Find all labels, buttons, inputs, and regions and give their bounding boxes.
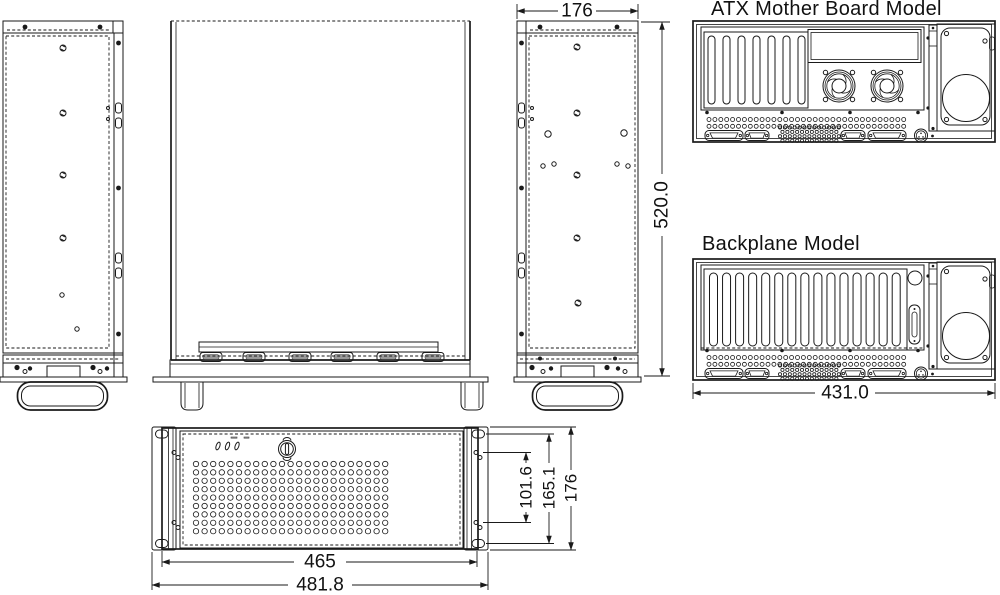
vent-hole [383,512,388,517]
expansion-slot [708,36,715,104]
vent-hole [228,512,233,517]
vent-hole [236,529,241,534]
vent-hole [193,461,198,466]
vent-hole [365,478,370,483]
backplane-slot [762,273,770,346]
vent-hole [331,470,336,475]
vent-hole [297,470,302,475]
cooling-fan [871,70,903,102]
vent-hole [322,529,327,534]
vent-hole [288,470,293,475]
vent-hole [383,470,388,475]
expansion-slot [768,36,775,104]
vent-hole [297,478,302,483]
vent-hole [314,470,319,475]
vent-hole [331,512,336,517]
vent-hole [211,529,216,534]
vent-hole [305,520,310,525]
vent-hole [211,487,216,492]
vent-hole [219,529,224,534]
dimension-overall-height: 520.0 [641,22,673,376]
vent-hole [236,495,241,500]
vent-hole [340,461,345,466]
vent-hole [211,461,216,466]
expansion-slot [798,36,805,104]
vent-hole [365,520,370,525]
vent-hole [348,529,353,534]
vent-hole [383,529,388,534]
vent-hole [348,461,353,466]
vent-hole [348,478,353,483]
rear-hole [908,271,922,285]
vent-hole [383,503,388,508]
vent-hole [236,470,241,475]
vent-hole [262,495,267,500]
vent-hole [211,470,216,475]
stand-handle [533,382,623,410]
backplane-slot [853,273,861,346]
vent-hole [236,461,241,466]
vent-hole [262,529,267,534]
vent-hole [357,520,362,525]
vent-hole [279,512,284,517]
vent-hole [348,520,353,525]
vent-hole [340,470,345,475]
vent-hole [262,512,267,517]
vent-hole [357,512,362,517]
dim-label-top-width: 176 [561,1,593,22]
backplane-slot [814,273,822,346]
vent-hole [374,495,379,500]
vent-hole [340,503,345,508]
dim-label-front-height: 176 [562,474,581,502]
vent-hole [271,487,276,492]
vent-hole [228,461,233,466]
vent-hole [254,470,259,475]
vent-hole [236,478,241,483]
vent-hole [254,478,259,483]
dimension-front-rail-pitch: 101.6 [483,453,536,523]
vent-hole [236,520,241,525]
vent-hole [383,461,388,466]
backplane-slot [723,273,731,346]
backplane-slot [840,273,848,346]
vent-hole [365,512,370,517]
vent-hole [279,470,284,475]
power-supply [929,262,995,369]
vent-hole [357,487,362,492]
vent-hole [193,495,198,500]
vent-hole [348,470,353,475]
plan-view-center [153,21,488,410]
vent-hole [348,503,353,508]
vent-hole [211,478,216,483]
expansion-slot [723,36,730,104]
stand-leg [181,382,203,410]
vent-hole [279,487,284,492]
vent-hole [297,529,302,534]
dimension-top-width: 176 [517,1,638,22]
vent-hole [262,470,267,475]
vent-hole [245,470,250,475]
front-led-indicators [215,437,249,450]
front-vent-grid [193,461,388,534]
drawing-canvas: 176 520.0 ATX Mother Board Model Backpla… [0,0,1000,595]
vent-hole [279,503,284,508]
vent-hole [262,487,267,492]
vent-hole [314,461,319,466]
vent-hole [262,478,267,483]
vent-hole [374,478,379,483]
vent-hole [228,487,233,492]
vent-hole [271,495,276,500]
backplane-slot [775,273,783,346]
vent-hole [271,503,276,508]
vertical-connector-bracket [909,305,920,344]
vent-hole [193,503,198,508]
vent-hole [245,495,250,500]
vent-hole [228,470,233,475]
side-view-right [514,21,641,410]
backplane-slot [866,273,874,346]
vent-hole [331,487,336,492]
dim-label-overall-width: 481.8 [296,575,344,595]
rear-view-atx: ATX Mother Board Model [693,0,995,142]
vent-hole [219,487,224,492]
vent-hole [322,495,327,500]
vent-hole [314,503,319,508]
backplane-slot [892,273,900,346]
vent-hole [340,487,345,492]
vent-hole [219,495,224,500]
rear-view-backplane: Backplane Model [693,233,995,380]
vent-hole [279,529,284,534]
vent-hole [365,470,370,475]
vent-hole [271,478,276,483]
vent-hole [322,461,327,466]
vent-hole [288,529,293,534]
stand-handle [18,382,108,410]
vent-hole [193,529,198,534]
backplane-slot [788,273,796,346]
vent-hole [297,461,302,466]
vent-hole [305,529,310,534]
vent-hole [202,478,207,483]
vent-hole [348,495,353,500]
vent-hole [228,478,233,483]
rear-io-strip [705,349,934,381]
atx-model-title: ATX Mother Board Model [711,0,942,20]
dim-label-overall-height: 520.0 [652,181,673,229]
vent-hole [374,461,379,466]
vent-hole [202,503,207,508]
vent-hole [331,529,336,534]
vent-hole [357,470,362,475]
vent-hole [202,520,207,525]
vent-hole [271,470,276,475]
expansion-slot [783,36,790,104]
vent-hole [383,487,388,492]
vent-hole [288,487,293,492]
vent-hole [271,461,276,466]
vent-hole [340,520,345,525]
vent-hole [254,520,259,525]
vent-hole [254,503,259,508]
vent-hole [271,529,276,534]
vent-hole [254,529,259,534]
vent-hole [219,470,224,475]
side-view-left [0,21,127,410]
vent-hole [322,503,327,508]
vent-hole [314,520,319,525]
vent-hole [365,529,370,534]
expansion-slot [753,36,760,104]
vent-hole [322,470,327,475]
cooling-fan [823,70,855,102]
vent-hole [202,512,207,517]
vent-hole [288,503,293,508]
rear-io-strip [705,111,934,143]
vent-hole [193,478,198,483]
vent-hole [365,495,370,500]
vent-hole [279,495,284,500]
vent-hole [288,512,293,517]
vent-hole [262,503,267,508]
vent-hole [365,503,370,508]
front-face-plate [180,431,463,548]
vent-hole [357,495,362,500]
front-view [152,427,488,550]
vent-hole [297,520,302,525]
vent-hole [271,520,276,525]
rack-ear-right [464,427,488,550]
vent-hole [348,512,353,517]
vent-hole [236,512,241,517]
vent-hole [193,512,198,517]
vent-hole [374,520,379,525]
vent-hole [314,495,319,500]
vent-hole [288,520,293,525]
vent-hole [322,478,327,483]
vent-hole [245,529,250,534]
vent-hole [357,529,362,534]
vent-hole [245,478,250,483]
front-keylock [279,438,296,461]
vent-hole [245,503,250,508]
vent-hole [254,487,259,492]
vent-hole [271,512,276,517]
vent-hole [340,529,345,534]
stand-leg [461,382,483,410]
dimension-front-body-width: 465 [162,551,477,573]
vent-hole [219,512,224,517]
vent-hole [314,529,319,534]
backplane-slot [736,273,744,346]
expansion-slot [738,36,745,104]
backplane-slot [879,273,887,346]
vent-hole [374,487,379,492]
vent-hole [305,512,310,517]
vent-hole [254,461,259,466]
vent-hole [202,470,207,475]
power-supply [929,24,995,131]
vent-hole [245,461,250,466]
vent-hole [202,529,207,534]
vent-hole [365,461,370,466]
vent-hole [254,512,259,517]
rack-ear-left [152,427,176,550]
vent-hole [228,503,233,508]
vent-hole [374,470,379,475]
vent-hole [236,503,241,508]
vent-hole [219,503,224,508]
vent-hole [245,487,250,492]
io-shield-opening [808,30,921,63]
vent-hole [202,461,207,466]
vent-hole [383,495,388,500]
vent-hole [245,512,250,517]
vent-hole [340,495,345,500]
backplane-slot [801,273,809,346]
vent-hole [322,512,327,517]
vent-hole [297,487,302,492]
vent-hole [193,470,198,475]
vent-hole [193,487,198,492]
vent-hole [383,478,388,483]
vent-hole [357,461,362,466]
vent-hole [305,487,310,492]
vent-hole [305,495,310,500]
vent-hole [279,478,284,483]
vent-hole [288,478,293,483]
backplane-slot [710,273,718,346]
technical-drawing-4u-chassis: 176 520.0 ATX Mother Board Model Backpla… [0,0,1000,595]
backplane-slot [749,273,757,346]
vent-hole [383,520,388,525]
vent-hole [305,478,310,483]
vent-hole [202,495,207,500]
vent-hole [228,520,233,525]
backplane-model-title: Backplane Model [702,233,860,255]
vent-hole [279,461,284,466]
vent-hole [314,512,319,517]
vent-hole [305,470,310,475]
vent-hole [254,495,259,500]
vent-hole [297,495,302,500]
vent-hole [219,461,224,466]
vent-hole [211,495,216,500]
vent-hole [288,461,293,466]
vent-hole [305,461,310,466]
vent-hole [305,503,310,508]
vent-hole [219,520,224,525]
vent-hole [374,529,379,534]
vent-hole [331,495,336,500]
vent-hole [340,512,345,517]
dimension-rear-width: 431.0 [693,383,995,404]
vent-hole [262,520,267,525]
vent-hole [297,512,302,517]
vent-hole [297,503,302,508]
vent-hole [374,512,379,517]
vent-hole [202,487,207,492]
vent-hole [228,495,233,500]
dim-label-rail-pitch: 101.6 [517,466,536,509]
vent-hole [322,520,327,525]
vent-hole [331,478,336,483]
vent-hole [340,478,345,483]
vent-hole [322,487,327,492]
vent-hole [365,487,370,492]
dim-label-rear-width: 431.0 [821,383,869,404]
vent-hole [314,478,319,483]
dim-label-slot-pitch: 165.1 [540,467,559,510]
vent-hole [193,520,198,525]
vent-hole [219,478,224,483]
vent-hole [314,487,319,492]
vent-hole [331,503,336,508]
dim-label-body-width: 465 [304,552,336,573]
vent-hole [331,520,336,525]
vent-hole [279,520,284,525]
vent-hole [236,487,241,492]
vent-hole [211,503,216,508]
vent-hole [357,478,362,483]
vent-hole [357,503,362,508]
vent-hole [245,520,250,525]
vent-hole [374,503,379,508]
vent-hole [228,529,233,534]
backplane-slot [827,273,835,346]
vent-hole [348,487,353,492]
vent-hole [262,461,267,466]
vent-hole [211,520,216,525]
vent-hole [288,495,293,500]
vent-hole [211,512,216,517]
vent-hole [331,461,336,466]
